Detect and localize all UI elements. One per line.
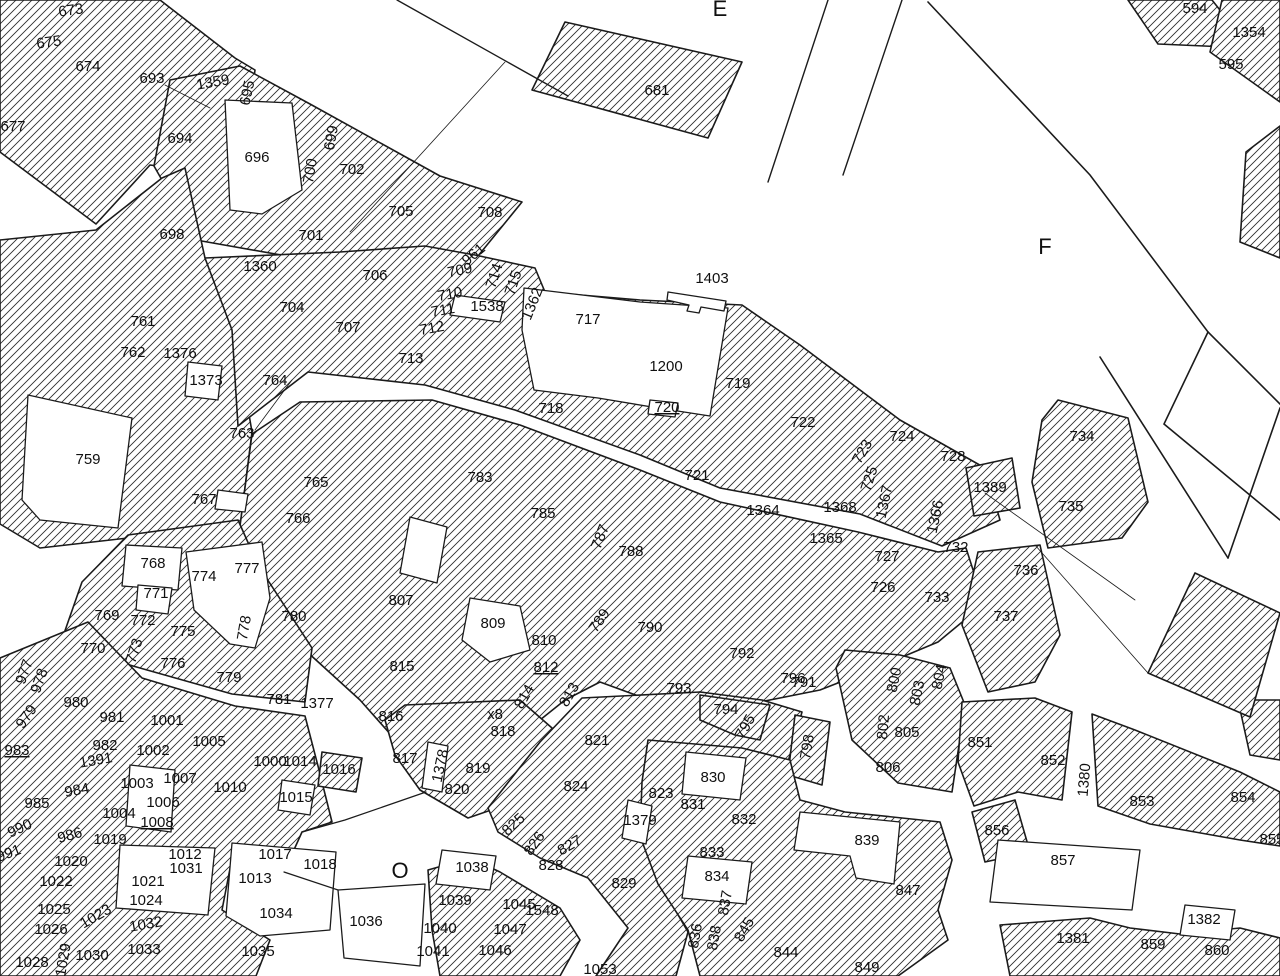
parcel-number-856: 856	[984, 822, 1009, 839]
parcel-number-732: 732	[943, 539, 968, 556]
parcel-number-806: 806	[875, 759, 900, 776]
parcel-number-763: 763	[229, 425, 254, 442]
parcel-number-764: 764	[262, 372, 287, 389]
parcel-number-724: 724	[889, 428, 914, 445]
parcel-number-980: 980	[63, 694, 88, 711]
parcel-number-713: 713	[398, 350, 423, 367]
parcel-number-708: 708	[477, 204, 502, 221]
parcel-number-859: 859	[1140, 936, 1165, 953]
parcel-number-721: 721	[684, 467, 709, 484]
parcel-number-1033: 1033	[127, 941, 160, 958]
parcel-number-677: 677	[0, 118, 25, 135]
parcel-number-791: 791	[791, 674, 816, 691]
parcel-number-983: 983	[4, 742, 29, 759]
parcel-number-1016: 1016	[322, 761, 355, 778]
parcel-number-1389: 1389	[973, 479, 1006, 496]
parcel-number-1002: 1002	[136, 742, 169, 759]
parcel-number-777: 777	[234, 560, 259, 577]
parcel-number-1200: 1200	[649, 358, 682, 375]
parcel-number-1365: 1365	[809, 530, 842, 547]
parcel-number-816: 816	[378, 708, 403, 725]
parcel-number-706: 706	[362, 267, 387, 284]
parcel-number-1036: 1036	[349, 913, 382, 930]
parcel-number-821: 821	[584, 732, 609, 749]
parcel-number-790: 790	[637, 619, 662, 636]
parcel-number-718: 718	[538, 400, 563, 417]
parcel-number-1046: 1046	[478, 942, 511, 959]
parcel-number-717: 717	[575, 311, 600, 328]
parcel-number-839: 839	[854, 832, 879, 849]
cadastral-map-viewport[interactable]: 6736756746776931359695694696698699700701…	[0, 0, 1280, 976]
parcel-number-1028: 1028	[15, 954, 48, 971]
parcel-number-698: 698	[159, 226, 184, 243]
parcel-number-681: 681	[644, 82, 669, 99]
parcel-number-707: 707	[335, 319, 360, 336]
parcel-number-759: 759	[75, 451, 100, 468]
parcel-number-833: 833	[699, 844, 724, 861]
parcel-number-985: 985	[24, 795, 49, 812]
parcel-number-1024: 1024	[129, 892, 162, 909]
parcel-number-1047: 1047	[493, 921, 526, 938]
parcel-number-788: 788	[618, 543, 643, 560]
parcel-number-774: 774	[191, 568, 216, 585]
parcel-number-818: 818	[490, 723, 515, 740]
parcel-number-819: 819	[465, 760, 490, 777]
parcel-number-673: 673	[57, 0, 84, 20]
parcel-number-807: 807	[388, 592, 413, 609]
parcel-number-1038: 1038	[455, 859, 488, 876]
parcel-number-1015: 1015	[279, 789, 312, 806]
parcel-number-1403: 1403	[695, 270, 728, 287]
parcel-number-785: 785	[530, 505, 555, 522]
parcel-number-1373: 1373	[189, 372, 222, 389]
zone-letter-F: F	[1038, 234, 1051, 259]
parcel-number-767: 767	[191, 491, 216, 508]
parcel-number-855: 855	[1259, 831, 1280, 848]
parcel-number-1000: 1000	[253, 753, 286, 770]
parcel-number-722: 722	[790, 414, 815, 431]
parcel-number-812: 812	[533, 659, 558, 676]
parcel-number-776: 776	[160, 655, 185, 672]
parcel-number-702: 702	[339, 161, 364, 178]
parcel-number-815: 815	[389, 658, 414, 675]
parcel-number-1377: 1377	[300, 695, 333, 712]
parcel-number-1017: 1017	[258, 846, 291, 863]
parcel-number-1030: 1030	[75, 947, 108, 964]
parcel-number-820: 820	[444, 781, 469, 798]
parcel-number-780: 780	[281, 608, 306, 625]
parcel-number-860: 860	[1204, 942, 1229, 959]
parcel-857	[990, 840, 1140, 910]
parcel-number-705: 705	[388, 203, 413, 220]
parcel-number-793: 793	[666, 680, 691, 697]
parcel-number-1031: 1031	[169, 860, 202, 877]
parcel-number-696: 696	[244, 149, 269, 166]
parcel-number-x8: x8	[487, 706, 503, 723]
parcel-number-1360: 1360	[243, 258, 276, 275]
parcel-number-857: 857	[1050, 852, 1075, 869]
parcel-number-1021: 1021	[131, 873, 164, 890]
parcel-number-844: 844	[773, 944, 798, 961]
parcel-number-1035: 1035	[241, 943, 274, 960]
parcel-number-849: 849	[854, 959, 879, 976]
parcel-number-1034: 1034	[259, 905, 292, 922]
parcel-number-1014: 1014	[283, 753, 316, 770]
parcel-number-775: 775	[170, 623, 195, 640]
parcel-number-1001: 1001	[150, 712, 183, 729]
parcel-number-794: 794	[713, 701, 738, 718]
parcel-number-851: 851	[967, 734, 992, 751]
parcel-number-824: 824	[563, 778, 588, 795]
parcel-number-1003: 1003	[120, 775, 153, 792]
parcel-number-772: 772	[130, 612, 155, 629]
zone-letter-E: E	[713, 0, 728, 21]
zone-letter-O: O	[391, 858, 408, 883]
parcel-number-766: 766	[285, 510, 310, 527]
parcel-number-1007: 1007	[163, 770, 196, 787]
parcel-number-810: 810	[531, 632, 556, 649]
parcel-number-834: 834	[704, 868, 729, 885]
parcel-number-769: 769	[94, 607, 119, 624]
parcel-number-771: 771	[143, 585, 168, 602]
parcel-number-1010: 1010	[213, 779, 246, 796]
parcel-number-595: 595	[1218, 56, 1243, 73]
parcel-number-734: 734	[1069, 428, 1094, 445]
parcel-number-726: 726	[870, 579, 895, 596]
parcel-number-1008: 1008	[140, 814, 173, 831]
parcel-number-1020: 1020	[54, 853, 87, 870]
parcel-number-809: 809	[480, 615, 505, 632]
parcel-number-852: 852	[1040, 752, 1065, 769]
parcel-number-1026: 1026	[34, 921, 67, 938]
parcel-number-736: 736	[1013, 562, 1038, 579]
parcel-767-building	[215, 490, 248, 512]
parcel-number-1041: 1041	[416, 943, 449, 960]
parcel-number-854: 854	[1230, 789, 1255, 806]
parcel-number-704: 704	[279, 299, 304, 316]
parcel-number-1004: 1004	[102, 805, 135, 822]
parcel-number-701: 701	[298, 227, 323, 244]
parcel-number-1380: 1380	[1075, 763, 1095, 798]
parcel-number-727: 727	[874, 548, 899, 565]
parcel-number-1382: 1382	[1187, 911, 1220, 928]
parcel-number-1006: 1006	[146, 794, 179, 811]
parcel-number-981: 981	[99, 709, 124, 726]
parcel-number-761: 761	[130, 313, 155, 330]
parcel-number-737: 737	[993, 608, 1018, 625]
parcel-number-829: 829	[611, 875, 636, 892]
parcel-number-1022: 1022	[39, 873, 72, 890]
parcel-number-847: 847	[895, 882, 920, 899]
parcel-number-674: 674	[75, 58, 100, 75]
parcel-number-1013: 1013	[238, 870, 271, 887]
parcel-number-817: 817	[392, 750, 417, 767]
parcel-number-594: 594	[1182, 0, 1207, 17]
parcel-number-805: 805	[894, 724, 919, 741]
parcel-number-728: 728	[940, 448, 965, 465]
parcel-number-1368: 1368	[823, 499, 856, 516]
parcel-number-1538: 1538	[470, 298, 503, 315]
parcel-number-783: 783	[467, 469, 492, 486]
parcel-number-765: 765	[303, 474, 328, 491]
parcel-number-762: 762	[120, 344, 145, 361]
parcel-number-675: 675	[35, 32, 62, 52]
parcel-number-1376: 1376	[163, 345, 196, 362]
parcel-number-1018: 1018	[303, 856, 336, 873]
parcel-number-1005: 1005	[192, 733, 225, 750]
parcel-number-1548: 1548	[525, 902, 558, 919]
parcel-number-1053: 1053	[583, 961, 616, 976]
parcel-number-720: 720	[654, 399, 679, 416]
parcel-number-828: 828	[538, 857, 563, 874]
parcel-number-768: 768	[140, 555, 165, 572]
parcel-number-802: 802	[874, 714, 893, 740]
parcel-number-1379: 1379	[623, 812, 656, 829]
parcel-number-779: 779	[216, 669, 241, 686]
parcel-number-733: 733	[924, 589, 949, 606]
parcel-number-1039: 1039	[438, 892, 471, 909]
parcel-number-832: 832	[731, 811, 756, 828]
parcel-number-831: 831	[680, 796, 705, 813]
parcel-number-1019: 1019	[93, 831, 126, 848]
parcel-number-735: 735	[1058, 498, 1083, 515]
parcel-number-719: 719	[725, 375, 750, 392]
parcel-number-1364: 1364	[746, 502, 779, 519]
parcel-number-1354: 1354	[1232, 24, 1265, 41]
parcel-number-694: 694	[167, 130, 192, 147]
parcel-number-1040: 1040	[423, 920, 456, 937]
parcel-number-830: 830	[700, 769, 725, 786]
parcel-number-770: 770	[80, 640, 105, 657]
parcel-number-693: 693	[139, 70, 164, 87]
parcel-number-1381: 1381	[1056, 930, 1089, 947]
parcel-number-1025: 1025	[37, 901, 70, 918]
parcel-number-781: 781	[266, 691, 291, 708]
cadastral-map-canvas[interactable]: 6736756746776931359695694696698699700701…	[0, 0, 1280, 976]
parcel-number-792: 792	[729, 645, 754, 662]
parcel-number-853: 853	[1129, 793, 1154, 810]
parcel-number-823: 823	[648, 785, 673, 802]
